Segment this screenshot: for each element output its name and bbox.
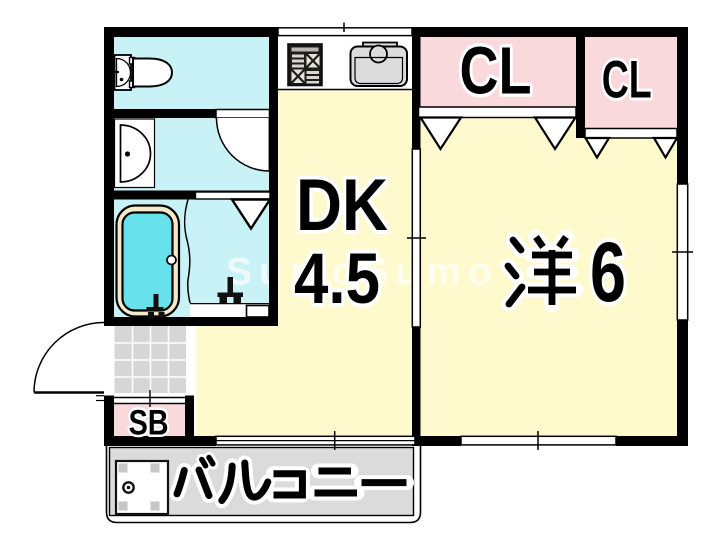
svg-text:CL: CL (602, 51, 652, 110)
svg-text:CL: CL (460, 34, 532, 109)
svg-text:6: 6 (590, 225, 626, 319)
svg-text:SB: SB (129, 404, 169, 443)
svg-text:DK: DK (296, 163, 388, 246)
svg-text:4.5: 4.5 (294, 240, 380, 319)
